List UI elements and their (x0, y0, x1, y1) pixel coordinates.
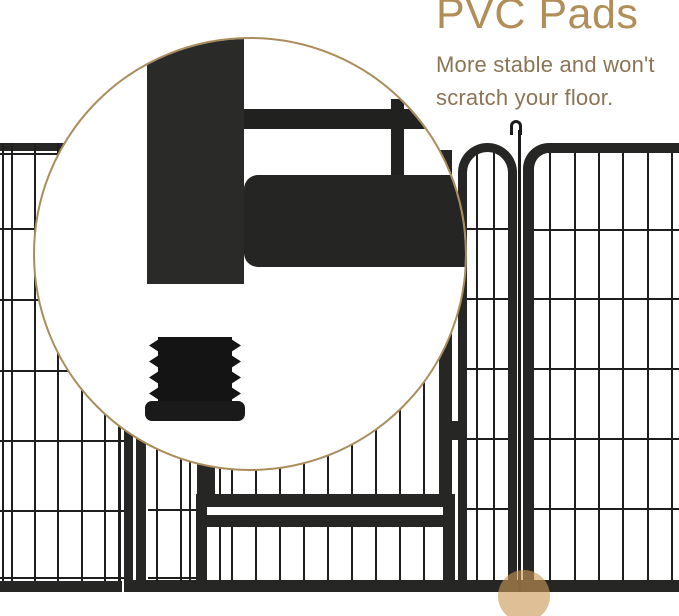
foot-highlight-marker (498, 570, 550, 616)
fence-arched-panel (458, 143, 517, 592)
caption-block: PVC Pads More stable and won't scratch y… (436, 0, 679, 109)
product-image: PVC Pads More stable and won't scratch y… (0, 0, 679, 616)
frame-wire-horizontal (244, 109, 467, 129)
caption-subtitle-line2: scratch your floor. (436, 81, 679, 114)
fence-wire-vertical (423, 527, 425, 580)
gate-bottom-bar (197, 494, 452, 507)
fence-wire-vertical (375, 527, 377, 580)
fence-wire-vertical (34, 143, 36, 581)
caption-heading: PVC Pads (436, 0, 679, 36)
fence-wire-vertical (255, 527, 257, 580)
fence-bottom-rail (0, 581, 122, 592)
fence-wire-horizontal (0, 440, 124, 442)
panel-left-post (196, 494, 207, 592)
fence-wire-vertical (219, 527, 221, 580)
fence-wire-vertical (279, 527, 281, 580)
frame-horizontal-tube (244, 175, 467, 267)
fence-wire-vertical (11, 143, 13, 581)
hinge-rod (518, 130, 521, 592)
pvc-pad-icon (145, 337, 245, 421)
fence-right-panel (523, 143, 679, 592)
fence-wire-vertical (327, 527, 329, 580)
magnifier-circle (33, 37, 467, 471)
gate-latch (448, 421, 458, 440)
fence-wire-horizontal (0, 510, 124, 512)
fence-wire-vertical (231, 527, 233, 580)
fence-wire-vertical (351, 527, 353, 580)
fence-wire-vertical (303, 527, 305, 580)
frame-vertical-tube (147, 37, 244, 284)
panel-right-post (443, 494, 455, 592)
fence-wire-vertical (2, 143, 4, 581)
fence-wire-horizontal (148, 509, 196, 511)
caption-subtitle-line1: More stable and won't (436, 48, 679, 81)
panel-bottom-bar (196, 515, 455, 527)
fence-wire-horizontal (0, 577, 124, 579)
fence-wire-vertical (399, 527, 401, 580)
fence-wire-horizontal (148, 577, 196, 579)
